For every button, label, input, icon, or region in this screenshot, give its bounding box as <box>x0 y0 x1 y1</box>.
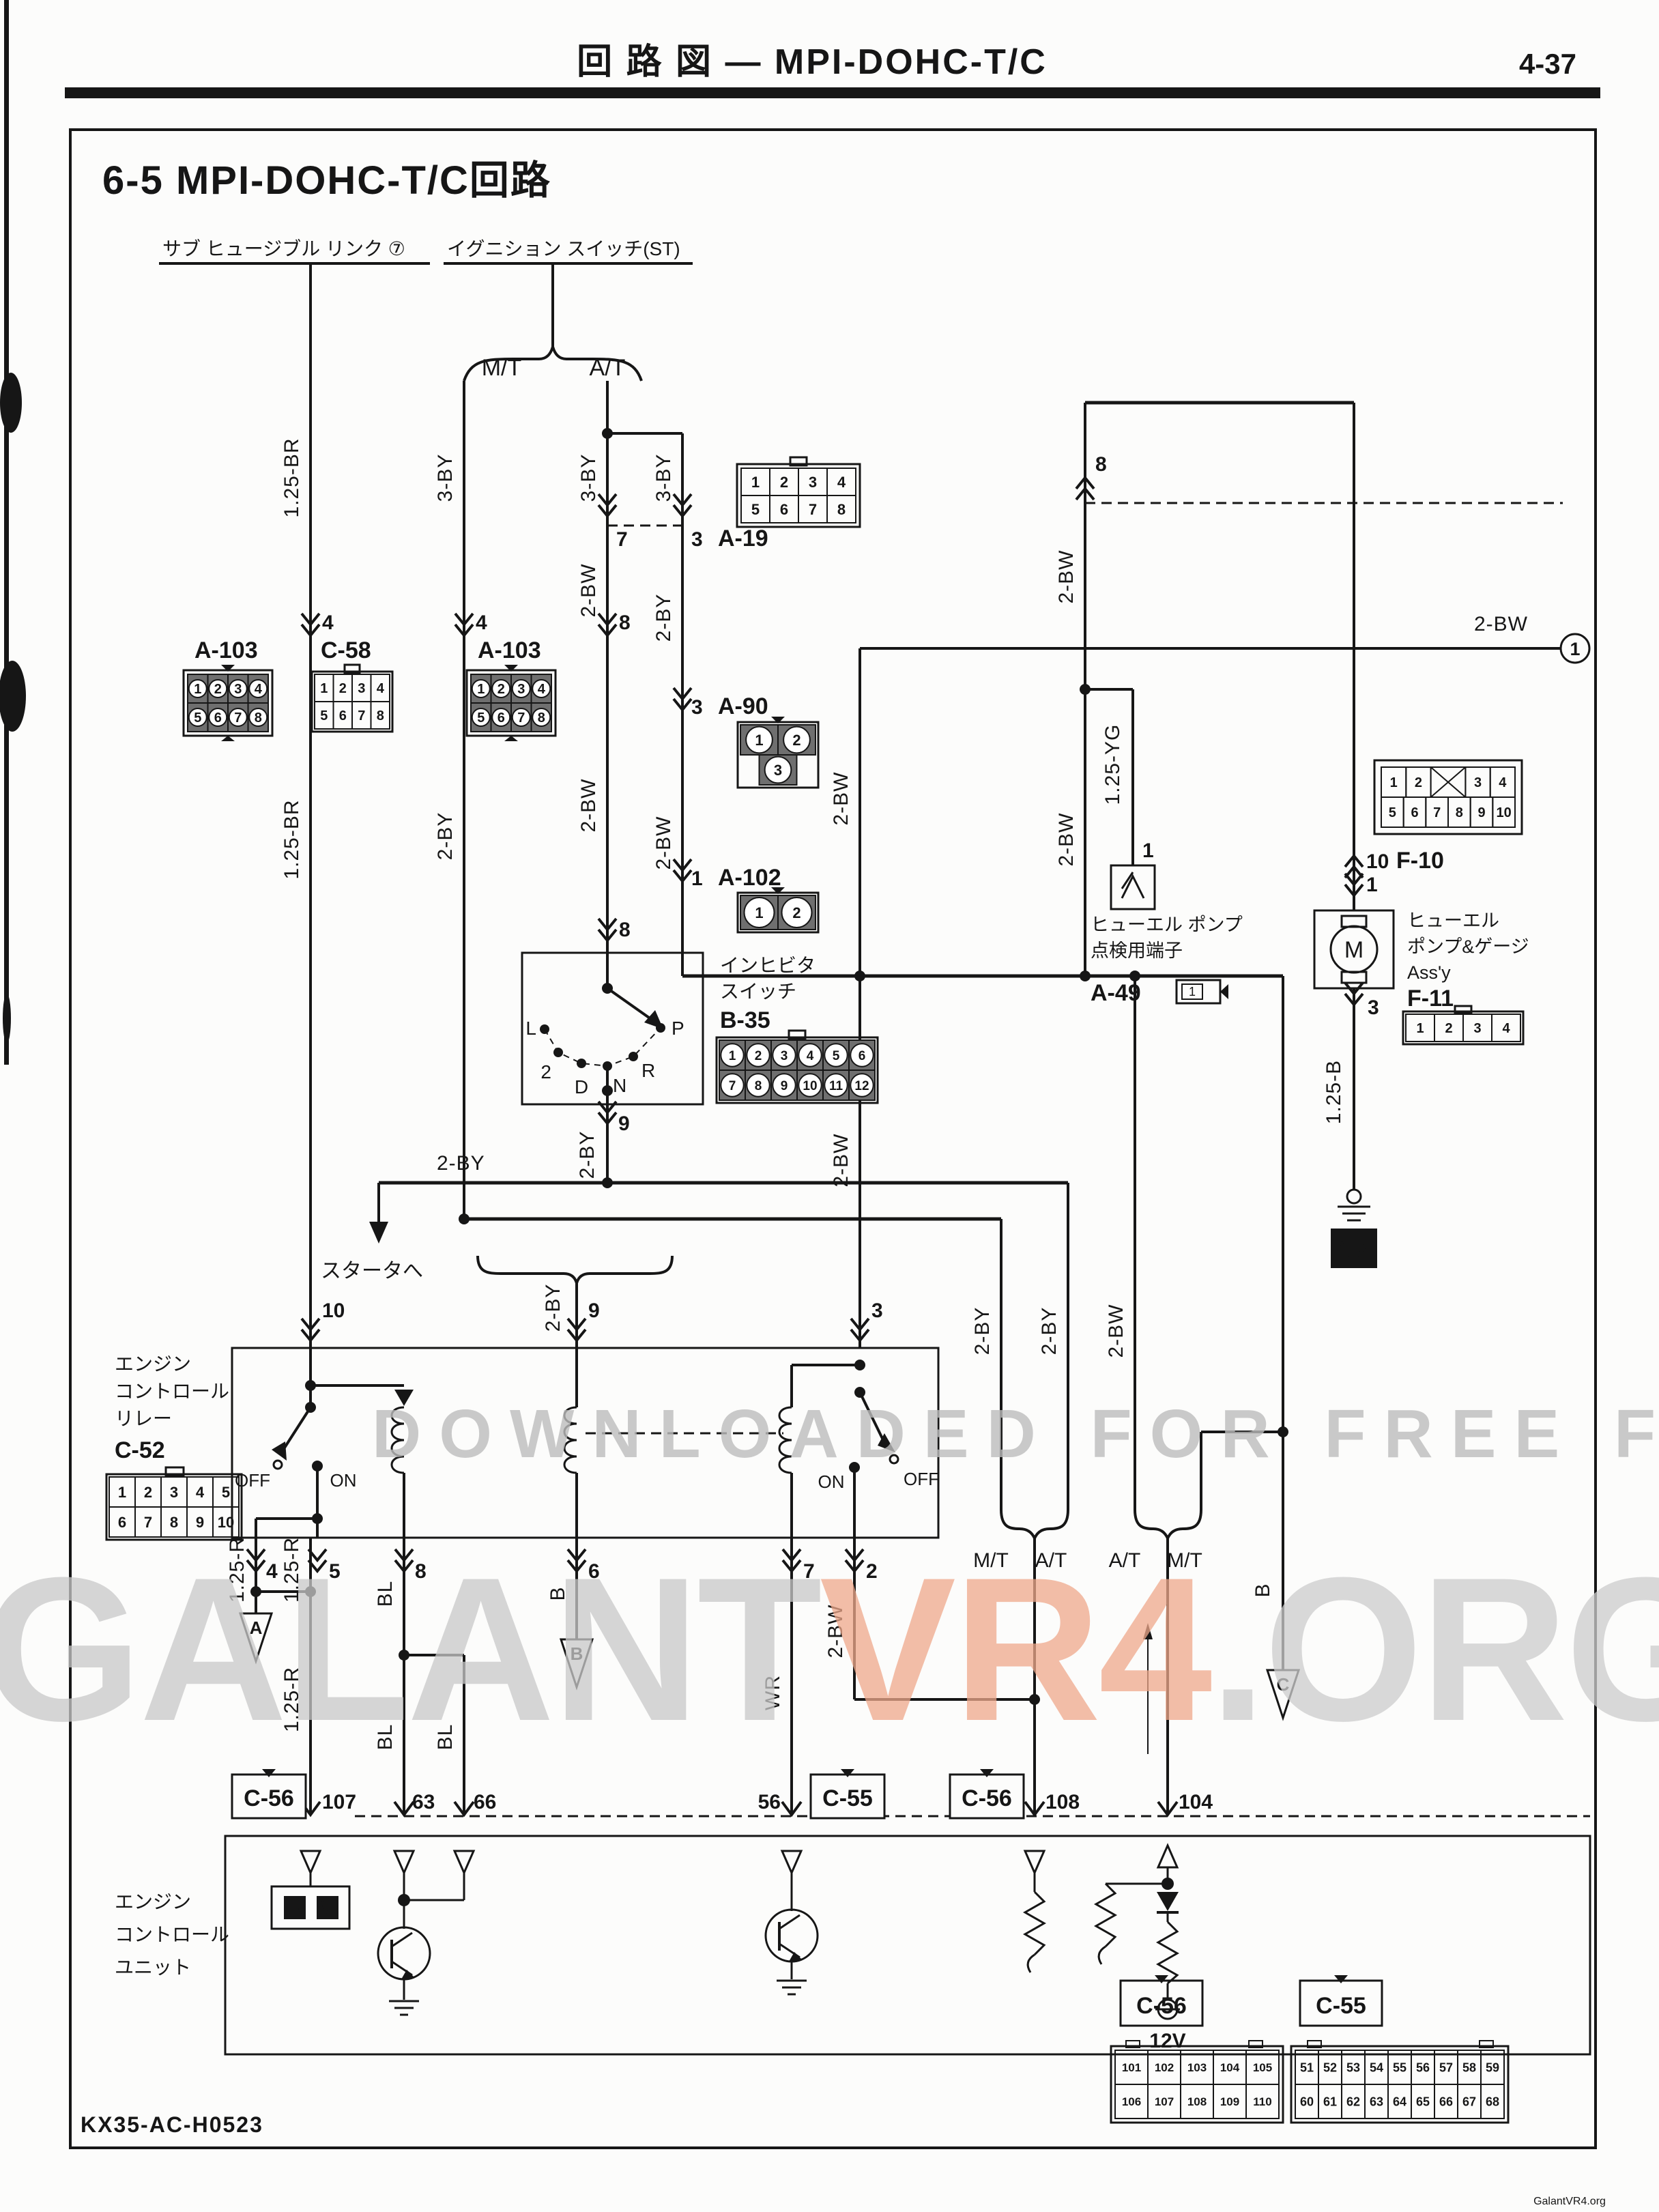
svg-text:57: 57 <box>1439 2060 1453 2074</box>
wire-label: 2-BY <box>652 594 675 642</box>
wire-label: 3-BY <box>577 454 600 502</box>
wire-label: 2-BY <box>1038 1307 1061 1355</box>
svg-text:68: 68 <box>1486 2095 1499 2108</box>
svg-text:102: 102 <box>1155 2061 1174 2074</box>
svg-text:1: 1 <box>755 732 763 749</box>
svg-text:1: 1 <box>755 904 763 921</box>
connector-f10: 12345678910 <box>1374 760 1522 834</box>
pin-number: 63 <box>412 1791 435 1813</box>
svg-text:108: 108 <box>1187 2095 1207 2108</box>
check-terminal-label: 点検用端子 <box>1091 940 1183 961</box>
connector-name: A-103 <box>478 637 541 663</box>
connector-name: A-102 <box>718 865 781 891</box>
pin-number: 7 <box>616 528 628 551</box>
svg-text:1: 1 <box>118 1484 126 1501</box>
connector-name: A-103 <box>194 637 258 663</box>
wire-label: 2-BW <box>830 1134 852 1188</box>
wire-label: 1.25-B <box>1323 1060 1345 1124</box>
svg-text:1: 1 <box>751 474 760 491</box>
gear-position: L <box>525 1018 536 1039</box>
wire-label: 3-BY <box>434 454 457 502</box>
svg-text:6: 6 <box>1411 805 1418 820</box>
fuel-pump-check-terminal: ヒューエル ポンプ 点検用端子 A-49 1 <box>1091 865 1243 1006</box>
connector-b35-pictogram: 123456789101112 <box>717 1031 878 1103</box>
pin-number: 8 <box>619 919 631 941</box>
sub-fusible-link-label: サブ ヒュージブル リンク ⑦ <box>162 238 405 259</box>
svg-text:8: 8 <box>538 710 545 726</box>
svg-text:59: 59 <box>1486 2060 1499 2074</box>
connector-name: C-58 <box>321 637 371 663</box>
watermark-org: .ORG <box>1209 1534 1659 1764</box>
wire-label: 2-BW <box>1105 1304 1127 1358</box>
tag-c56: C-56 <box>962 1785 1012 1811</box>
pin-number: 56 <box>758 1791 781 1813</box>
svg-text:7: 7 <box>234 710 242 726</box>
pin-number: 3 <box>871 1299 883 1322</box>
svg-text:1: 1 <box>477 682 485 697</box>
bottom-connector-c55: C-55 51525354555657585960616263646566676… <box>1291 1975 1508 2123</box>
svg-text:7: 7 <box>517 710 525 726</box>
svg-text:51: 51 <box>1300 2060 1314 2074</box>
svg-text:56: 56 <box>1416 2060 1430 2074</box>
svg-text:6: 6 <box>214 710 222 726</box>
wire-label: 2-BW <box>1055 550 1078 604</box>
pin-number: 108 <box>1045 1791 1080 1813</box>
relay-label-line: コントロール <box>115 1381 229 1402</box>
pin-number: 4 <box>476 612 487 634</box>
svg-text:4: 4 <box>538 682 546 697</box>
pin-number: 1 <box>691 867 703 890</box>
svg-text:1: 1 <box>1390 775 1398 790</box>
pin-number: 104 <box>1179 1791 1213 1813</box>
connector-a102: 12 <box>738 887 818 932</box>
svg-text:6: 6 <box>780 501 788 518</box>
svg-text:2: 2 <box>1415 775 1422 790</box>
wire-label: 1.25-BR <box>280 437 303 517</box>
header-title: 回 路 図 — MPI-DOHC-T/C <box>577 42 1048 82</box>
svg-text:104: 104 <box>1220 2061 1240 2074</box>
svg-text:2: 2 <box>792 904 800 921</box>
svg-text:9: 9 <box>781 1079 788 1093</box>
svg-text:3: 3 <box>809 474 817 491</box>
svg-text:3: 3 <box>358 681 365 696</box>
svg-text:3: 3 <box>234 682 242 697</box>
svg-text:8: 8 <box>377 708 384 723</box>
svg-text:2: 2 <box>1445 1021 1452 1036</box>
svg-text:11: 11 <box>829 1079 843 1093</box>
watermark: DOWNLOADED FOR FREE FROM: GALANTVR4.ORG <box>0 1396 1659 1764</box>
pin-number: 8 <box>1095 453 1107 476</box>
connector-a90: 123 <box>738 717 818 788</box>
pin-number: 3 <box>1368 996 1379 1019</box>
svg-text:65: 65 <box>1416 2095 1430 2108</box>
svg-text:62: 62 <box>1346 2095 1360 2108</box>
wire-label: 2-BW <box>1055 813 1078 867</box>
svg-text:8: 8 <box>755 1079 762 1093</box>
svg-text:4: 4 <box>377 681 385 696</box>
svg-text:4: 4 <box>1499 775 1507 790</box>
svg-text:10: 10 <box>1497 805 1512 820</box>
svg-text:3: 3 <box>774 762 782 779</box>
ground-ref: 17 <box>1338 1233 1370 1265</box>
wire-label: 1.25-BR <box>280 799 303 879</box>
gear-position: 2 <box>540 1061 551 1082</box>
svg-text:5: 5 <box>194 710 201 726</box>
motor-m: M <box>1344 937 1364 963</box>
mt-tag: M/T <box>482 355 522 381</box>
connector-f11-pictogram: 1234 <box>1403 1006 1523 1044</box>
check-terminal-label: ヒューエル ポンプ <box>1091 915 1243 935</box>
svg-text:2: 2 <box>144 1484 152 1501</box>
svg-text:5: 5 <box>222 1484 230 1501</box>
pin-number: 107 <box>322 1791 356 1813</box>
svg-text:2: 2 <box>792 732 800 749</box>
ignition-switch-label: イグニション スイッチ(ST) <box>447 238 680 259</box>
svg-text:54: 54 <box>1370 2060 1383 2074</box>
svg-text:8: 8 <box>837 501 846 518</box>
connector-c52-pictogram: 12345678910 <box>106 1467 242 1540</box>
svg-text:2: 2 <box>755 1049 762 1063</box>
svg-text:5: 5 <box>477 710 485 726</box>
connector-name: F-10 <box>1396 848 1444 874</box>
svg-text:6: 6 <box>497 710 505 726</box>
tag-c55: C-55 <box>822 1785 873 1811</box>
tag-c55: C-55 <box>1316 1993 1366 2019</box>
svg-text:6: 6 <box>339 708 347 723</box>
svg-text:64: 64 <box>1393 2095 1406 2108</box>
voltage-label: 12V <box>1149 2030 1185 2052</box>
svg-text:2: 2 <box>214 682 222 697</box>
connector-c58: 12345678 <box>312 665 392 732</box>
wire-label: 2-BY <box>576 1131 598 1179</box>
gear-position: N <box>613 1075 626 1096</box>
svg-text:6: 6 <box>859 1049 866 1063</box>
ecu-label-line: コントロール <box>115 1924 229 1945</box>
svg-text:61: 61 <box>1323 2095 1337 2108</box>
svg-text:105: 105 <box>1253 2061 1272 2074</box>
wire-label: 2-BW <box>830 772 852 826</box>
svg-text:7: 7 <box>729 1079 736 1093</box>
svg-text:101: 101 <box>1122 2061 1141 2074</box>
page-header: 回 路 図 — MPI-DOHC-T/C 4-37 <box>65 42 1600 98</box>
site-credit: GalantVR4.org <box>1533 2196 1606 2207</box>
ecu-label-line: ユニット <box>115 1957 191 1978</box>
watermark-galant: GALANT <box>0 1534 822 1764</box>
pin-number: 10 <box>1366 850 1389 873</box>
wire-label: 1.25-YG <box>1101 724 1124 805</box>
gear-position: D <box>575 1076 588 1097</box>
page-ref-number: 1 <box>1570 639 1580 659</box>
svg-text:58: 58 <box>1462 2060 1476 2074</box>
connector-a103-1: 12345678 <box>184 665 272 741</box>
svg-text:4: 4 <box>196 1484 205 1501</box>
to-starter-label: スタータへ <box>321 1260 423 1282</box>
wire-label: 2-BY <box>542 1284 564 1332</box>
transmission-tags: M/T A/T M/T A/T A/T M/T <box>482 355 1202 1572</box>
svg-text:2: 2 <box>339 681 347 696</box>
relay-off-label: OFF <box>235 1470 270 1491</box>
svg-text:5: 5 <box>1389 805 1396 820</box>
connector-a103-2: 12345678 <box>467 665 556 741</box>
svg-text:8: 8 <box>255 710 262 726</box>
svg-text:2: 2 <box>780 474 788 491</box>
svg-text:110: 110 <box>1253 2095 1271 2108</box>
svg-text:53: 53 <box>1346 2060 1360 2074</box>
pump-label-line: ポンプ&ゲージ <box>1407 936 1529 957</box>
document-code: KX35-AC-H0523 <box>81 2112 263 2137</box>
mini-pin: 1 <box>1189 985 1196 999</box>
engine-control-unit: エンジン コントロール ユニット 電 源 <box>115 1816 1590 2054</box>
svg-text:9: 9 <box>1477 805 1485 820</box>
wire-label: 2-BY <box>437 1152 485 1175</box>
wire-label: 2-BW <box>577 564 600 618</box>
relay-on-label: ON <box>818 1471 845 1492</box>
svg-text:106: 106 <box>1122 2095 1141 2108</box>
svg-text:67: 67 <box>1462 2095 1476 2108</box>
pin-number: 3 <box>691 696 703 719</box>
svg-text:60: 60 <box>1300 2095 1314 2108</box>
svg-text:4: 4 <box>1502 1021 1510 1036</box>
svg-text:1: 1 <box>1416 1021 1424 1036</box>
svg-text:9: 9 <box>196 1514 204 1531</box>
gear-position: P <box>672 1018 684 1039</box>
gear-position: R <box>641 1060 655 1081</box>
svg-text:5: 5 <box>751 501 760 518</box>
wire-label: 2-BW <box>1474 613 1528 635</box>
svg-text:1: 1 <box>194 682 201 697</box>
connector-name: A-90 <box>718 693 768 719</box>
relay-label-line: エンジン <box>115 1353 191 1375</box>
pin-number: 10 <box>322 1299 345 1322</box>
connector-name: A-19 <box>718 526 768 551</box>
svg-text:7: 7 <box>1433 805 1441 820</box>
svg-text:63: 63 <box>1370 2095 1383 2108</box>
svg-text:3: 3 <box>1474 775 1482 790</box>
svg-text:103: 103 <box>1187 2061 1207 2074</box>
svg-text:4: 4 <box>807 1049 814 1063</box>
svg-text:3: 3 <box>1473 1021 1481 1036</box>
source-labels: サブ ヒュージブル リンク ⑦ イグニション スイッチ(ST) <box>159 238 693 263</box>
connector-a19: 12345678 <box>737 457 860 527</box>
svg-text:10: 10 <box>803 1079 817 1093</box>
pin-number: 9 <box>588 1299 600 1322</box>
power-glyph: 源 <box>320 1899 335 1916</box>
pin-number: 9 <box>618 1112 630 1135</box>
at-tag: A/T <box>590 355 626 381</box>
watermark-vr4: VR4 <box>820 1534 1213 1764</box>
pin-number: 3 <box>691 528 703 551</box>
wire-label: 3-BY <box>652 454 675 502</box>
watermark-line1: DOWNLOADED FOR FREE FROM: <box>372 1396 1659 1472</box>
power-glyph: 電 <box>287 1899 302 1916</box>
svg-text:2: 2 <box>497 682 505 697</box>
wire-label: 2-BY <box>434 812 457 861</box>
pin-number: 1 <box>1142 839 1154 862</box>
wire-label: 2-BW <box>652 816 675 870</box>
inhibitor-connector-name: B-35 <box>720 1007 770 1033</box>
page-number: 4-37 <box>1519 48 1576 80</box>
pin-number: 1 <box>1366 874 1378 896</box>
svg-text:5: 5 <box>833 1049 840 1063</box>
svg-text:7: 7 <box>144 1514 152 1531</box>
relay-connector-name: C-52 <box>115 1437 165 1463</box>
svg-text:8: 8 <box>170 1514 178 1531</box>
relay-on-label: ON <box>330 1470 357 1491</box>
pump-label-line: Ass'y <box>1407 962 1451 983</box>
inhibitor-label-line: スイッチ <box>720 981 796 1002</box>
scan-artifacts <box>0 0 26 1065</box>
svg-text:7: 7 <box>809 501 817 518</box>
svg-text:1: 1 <box>729 1049 736 1063</box>
svg-text:4: 4 <box>255 682 263 697</box>
svg-text:GALANTVR4.ORG: GALANTVR4.ORG <box>0 1534 1659 1764</box>
tag-c56: C-56 <box>1136 1993 1187 2019</box>
pin-number: 8 <box>619 612 631 634</box>
bottom-connector-c56: C-56 101102103104105106107108109110 <box>1111 1975 1283 2123</box>
svg-text:7: 7 <box>358 708 365 723</box>
pump-label-line: ヒューエル <box>1407 910 1499 931</box>
svg-text:66: 66 <box>1439 2095 1453 2108</box>
svg-text:1: 1 <box>320 681 328 696</box>
pin-number: 4 <box>322 612 334 634</box>
header-rule <box>65 87 1600 98</box>
diagram-title: 6-5 MPI-DOHC-T/C回路 <box>102 158 551 203</box>
svg-text:52: 52 <box>1323 2060 1337 2074</box>
svg-text:6: 6 <box>118 1514 126 1531</box>
svg-text:3: 3 <box>170 1484 178 1501</box>
svg-text:8: 8 <box>1456 805 1463 820</box>
svg-text:107: 107 <box>1155 2095 1174 2108</box>
svg-text:3: 3 <box>517 682 525 697</box>
pump-connector-name: F-11 <box>1407 986 1454 1011</box>
ecu-label-line: エンジン <box>115 1891 191 1912</box>
pin-number: 66 <box>474 1791 496 1813</box>
tag-c56: C-56 <box>244 1785 294 1811</box>
wire-label: 2-BW <box>577 779 600 833</box>
fuel-pump-assy: 1 M ヒューエル ポンプ&ゲージ Ass'y F-11 17 <box>1314 910 1529 1268</box>
relay-label-line: リレー <box>115 1408 172 1429</box>
svg-text:5: 5 <box>320 708 328 723</box>
svg-text:109: 109 <box>1220 2095 1239 2108</box>
check-terminal-name: A-49 <box>1091 980 1141 1006</box>
svg-text:55: 55 <box>1393 2060 1406 2074</box>
svg-text:3: 3 <box>781 1049 788 1063</box>
inhibitor-label-line: インヒビタ <box>720 955 816 976</box>
svg-text:4: 4 <box>837 474 846 491</box>
svg-text:12: 12 <box>854 1079 869 1093</box>
scanned-wiring-diagram-page: 回 路 図 — MPI-DOHC-T/C 4-37 6-5 MPI-DOHC-T… <box>0 0 1659 2212</box>
wire-label: 2-BY <box>971 1307 994 1355</box>
